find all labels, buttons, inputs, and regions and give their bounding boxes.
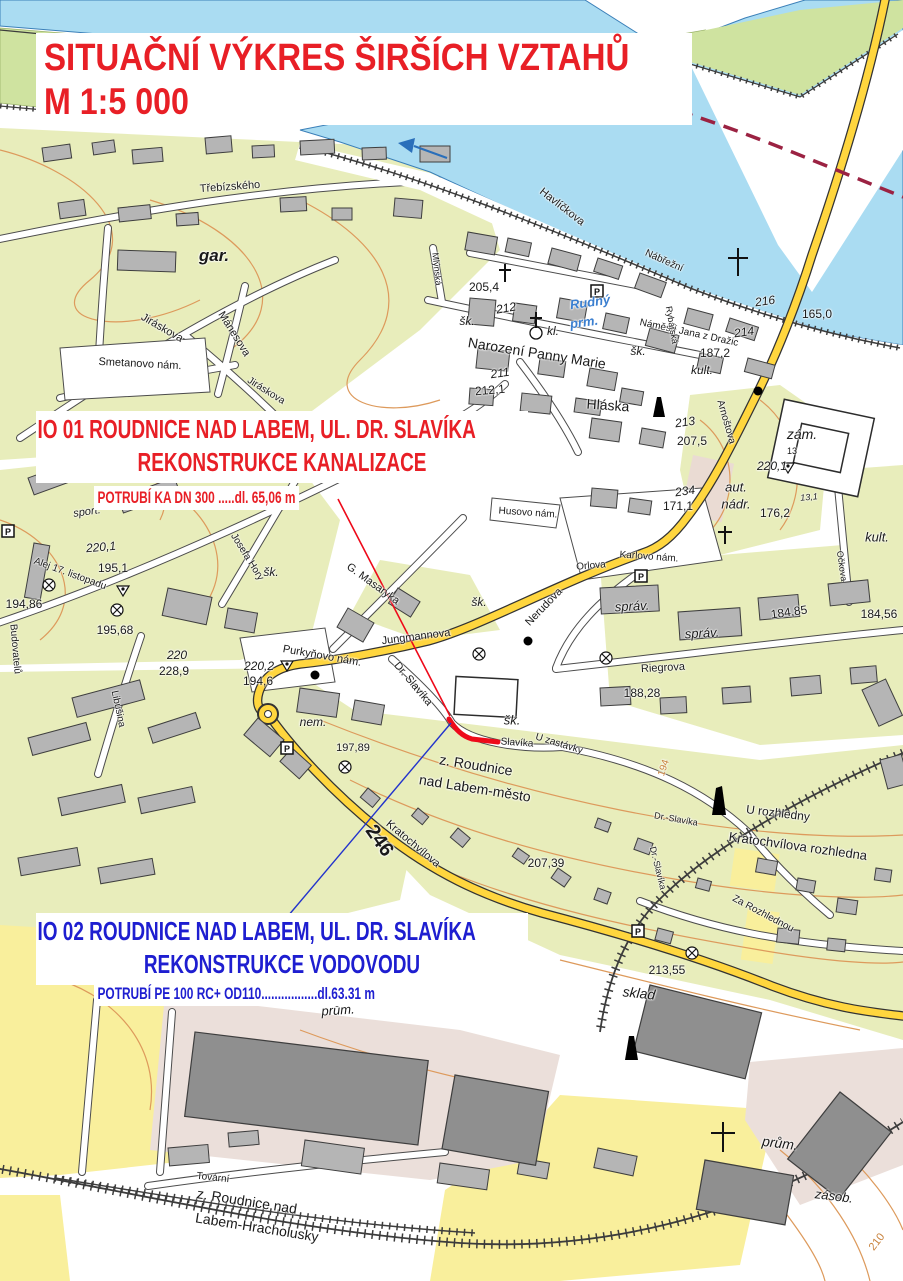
io02-annotation: IO 02 ROUDNICE NAD LABEM, UL. DR. SLAVÍK… (36, 913, 528, 985)
svg-text:P: P (635, 927, 641, 937)
svg-text:P: P (284, 744, 290, 754)
drawing-title: SITUAČNÍ VÝKRES ŠIRŠÍCH VZTAHŮ (44, 35, 608, 81)
io01-pipe-note: POTRUBÍ KA DN 300 .....dl. 65,06 m (94, 486, 299, 510)
svg-text:P: P (638, 572, 644, 582)
io01-annotation: IO 01 ROUDNICE NAD LABEM, UL. DR. SLAVÍK… (36, 411, 528, 483)
svg-text:P: P (594, 287, 600, 297)
map-canvas: P P P P P (0, 0, 903, 1281)
situational-drawing: P P P P P (0, 0, 903, 1281)
drawing-title-block: SITUAČNÍ VÝKRES ŠIRŠÍCH VZTAHŮ M 1:5 000 (36, 33, 692, 125)
io02-line1: IO 02 ROUDNICE NAD LABEM, UL. DR. SLAVÍK… (36, 915, 395, 948)
school-building (454, 676, 518, 717)
io02-line2: REKONSTRUKCE VODOVODU (102, 948, 461, 981)
io02-pipe-note: POTRUBÍ PE 100 RC+ OD110................… (94, 982, 378, 1006)
svg-text:P: P (5, 527, 11, 537)
io01-line1: IO 01 ROUDNICE NAD LABEM, UL. DR. SLAVÍK… (36, 413, 395, 446)
drawing-scale: M 1:5 000 (44, 81, 608, 123)
io01-line2: REKONSTRUKCE KANALIZACE (102, 446, 461, 479)
